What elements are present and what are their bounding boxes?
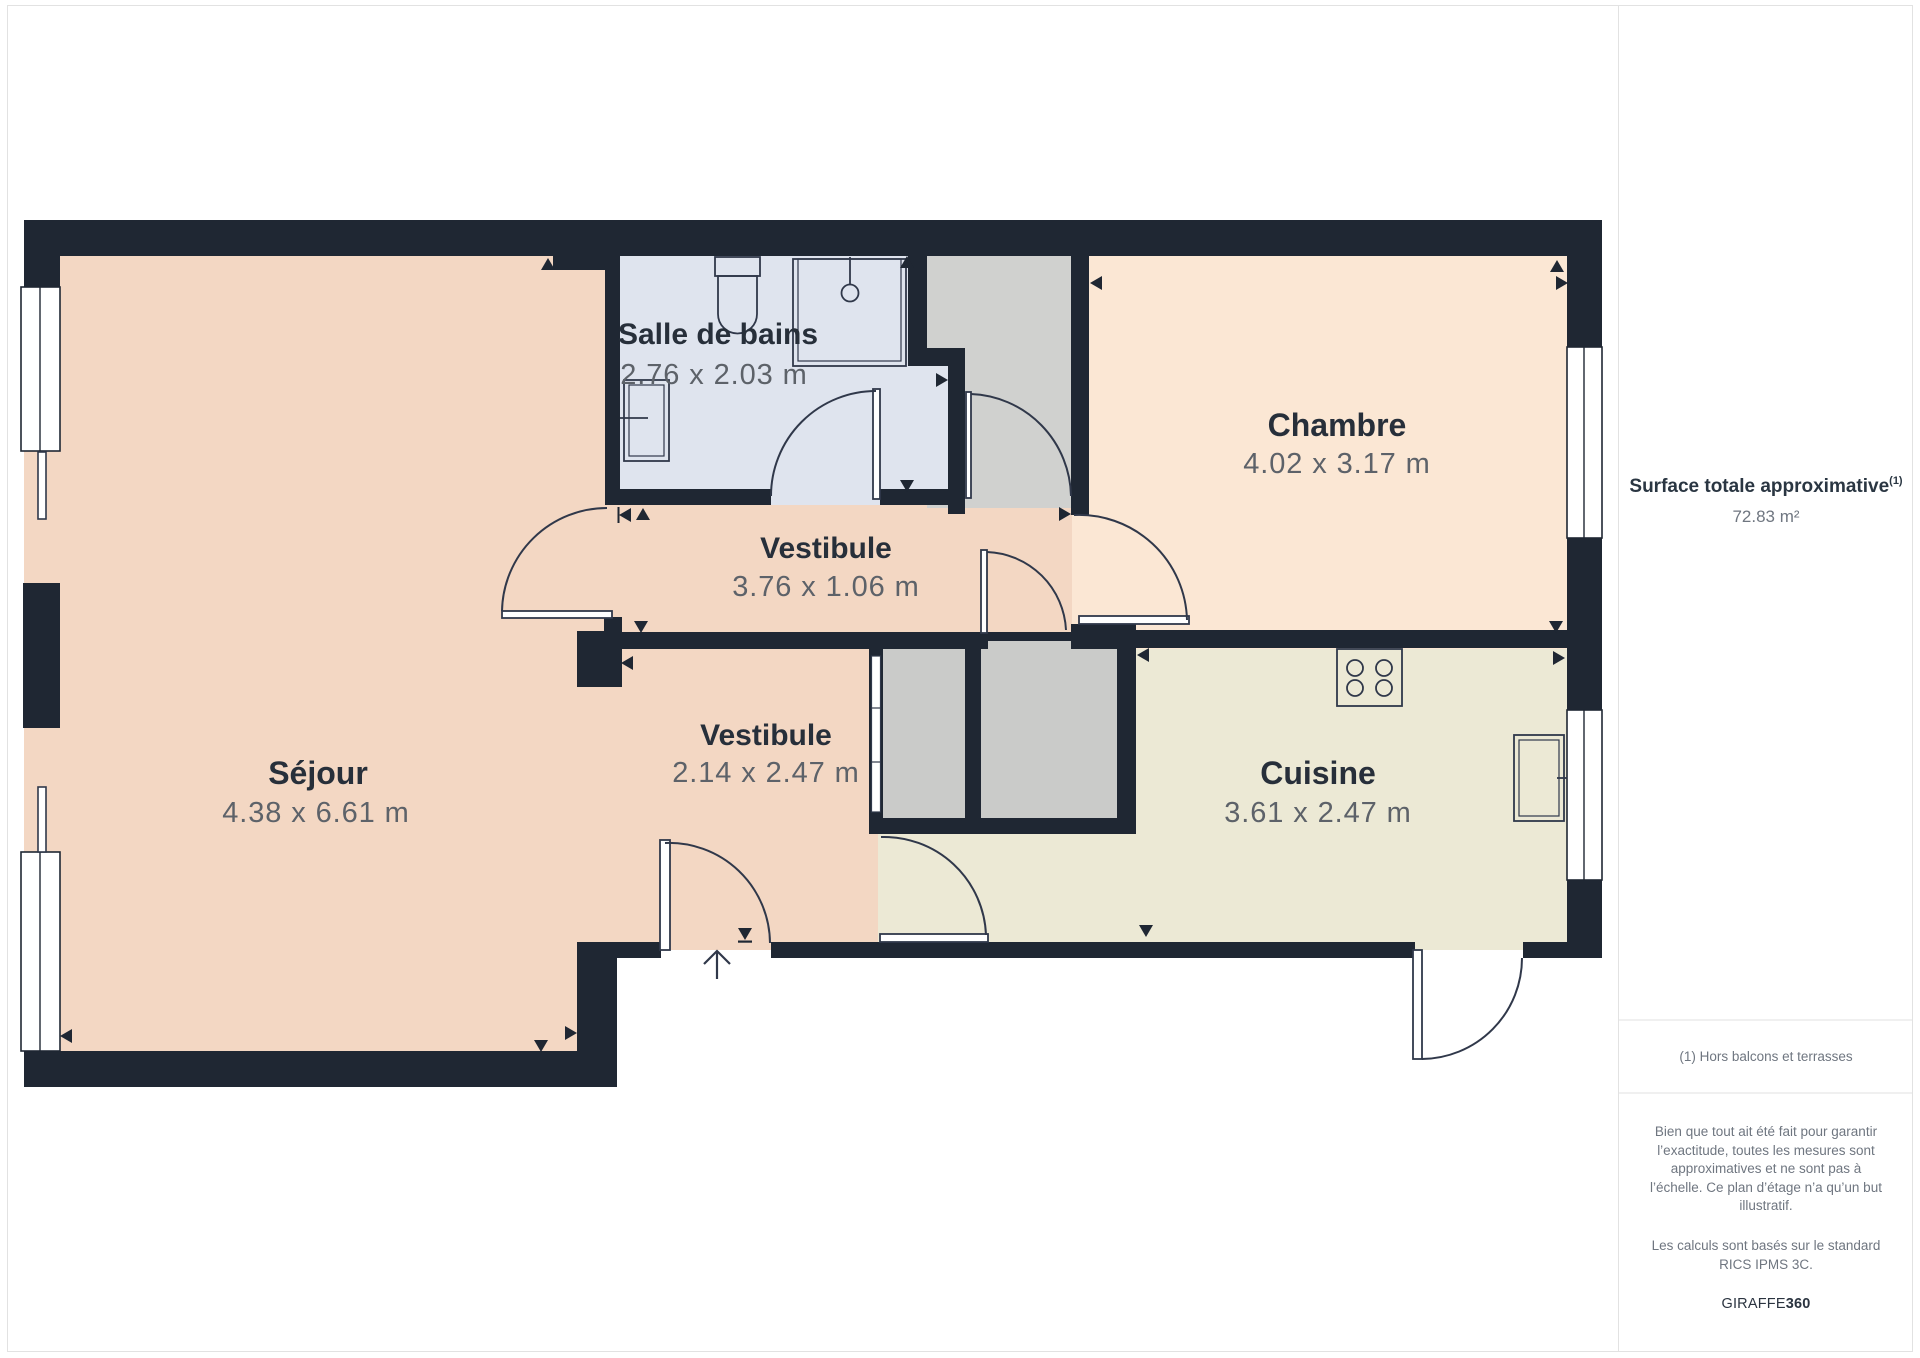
svg-text:2.76 x 2.03 m: 2.76 x 2.03 m [620,359,807,391]
svg-text:Salle de bains: Salle de bains [618,318,818,351]
svg-text:Bien que tout ait été fait pou: Bien que tout ait été fait pour garantir [1655,1124,1878,1139]
svg-text:2.14 x 2.47 m: 2.14 x 2.47 m [672,757,859,789]
svg-text:Séjour: Séjour [268,755,368,791]
svg-text:3.61 x 2.47 m: 3.61 x 2.47 m [1224,797,1411,829]
svg-text:GIRAFFE360: GIRAFFE360 [1721,1296,1810,1312]
svg-text:Vestibule: Vestibule [760,532,892,565]
svg-text:illustratif.: illustratif. [1739,1198,1792,1213]
svg-text:approximatives et ne sont pas: approximatives et ne sont pas à [1671,1161,1862,1176]
svg-text:l’exactitude, toutes les mesur: l’exactitude, toutes les mesures sont [1657,1143,1875,1158]
svg-text:4.38 x 6.61 m: 4.38 x 6.61 m [222,797,409,829]
svg-text:Cuisine: Cuisine [1260,755,1376,791]
svg-text:RICS IPMS 3C.: RICS IPMS 3C. [1719,1257,1813,1272]
svg-text:Chambre: Chambre [1268,407,1407,443]
svg-text:3.76 x 1.06 m: 3.76 x 1.06 m [732,571,919,603]
svg-text:l’échelle. Ce plan d’étage n’a: l’échelle. Ce plan d’étage n’a qu’un but [1650,1180,1882,1195]
svg-text:Vestibule: Vestibule [700,719,832,752]
svg-text:Surface totale approximative(1: Surface totale approximative(1) [1629,475,1903,497]
svg-text:4.02 x 3.17 m: 4.02 x 3.17 m [1243,448,1430,480]
svg-text:(1) Hors balcons et terrasses: (1) Hors balcons et terrasses [1679,1049,1853,1064]
svg-text:Les calculs sont basés sur le: Les calculs sont basés sur le standard [1652,1238,1881,1253]
svg-text:72.83 m²: 72.83 m² [1732,507,1799,526]
